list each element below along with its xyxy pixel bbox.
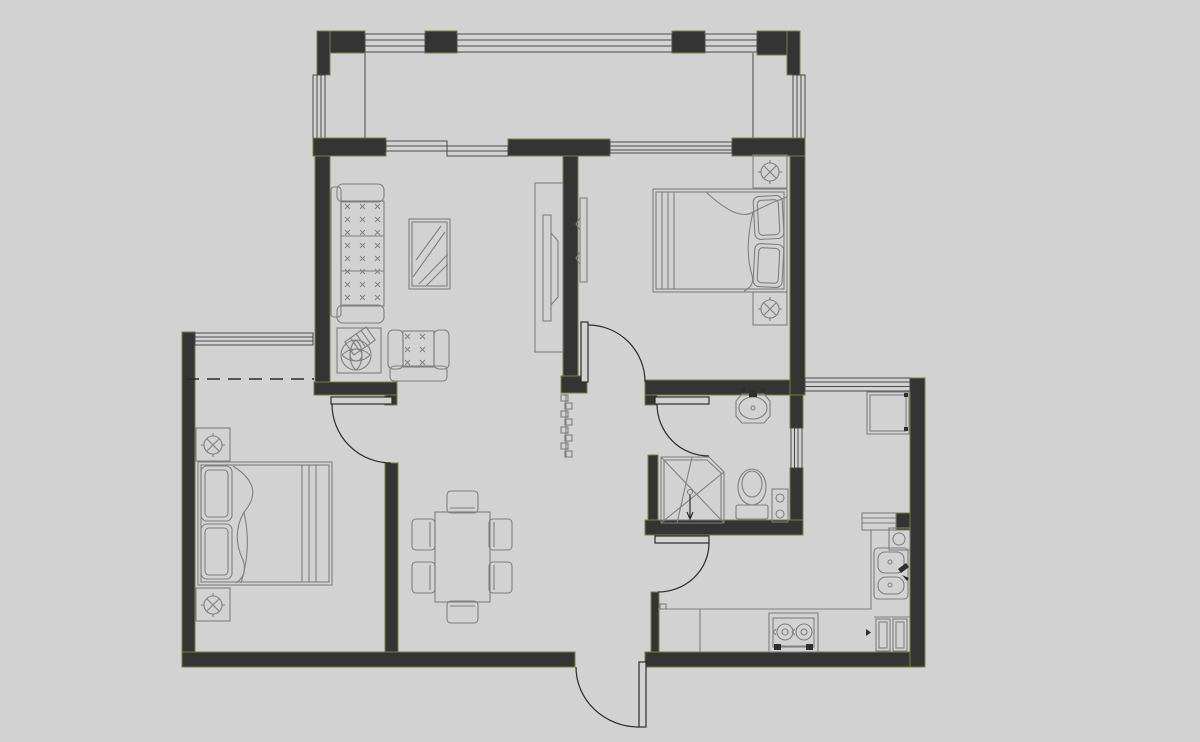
bedroom-left-left-wall <box>182 332 195 653</box>
bedroom-left-furniture <box>196 428 332 621</box>
kitchen-left-stub <box>651 592 659 652</box>
top-wall-left-segment <box>313 138 386 156</box>
bedroom-left-door <box>331 397 392 463</box>
top-wall-middle-segment <box>508 139 610 156</box>
bottom-wall-right <box>645 652 925 667</box>
bathroom-window <box>791 428 802 468</box>
bedroom-right-bottom-wall <box>645 380 805 395</box>
double-bed <box>198 462 332 585</box>
television <box>543 215 551 321</box>
corner-shower <box>661 457 724 523</box>
kitchen-window-band <box>805 378 910 391</box>
living-room-bottom-wall <box>314 382 397 395</box>
balcony <box>313 31 805 138</box>
floor-plan-canvas <box>0 0 1200 742</box>
potted-plant <box>337 327 381 373</box>
armchair <box>388 330 449 381</box>
bathroom-right-wall-lower <box>790 468 803 520</box>
toilet <box>736 469 788 522</box>
top-wall-right-segment <box>732 138 805 156</box>
balcony-corner-top-right-leg <box>787 31 800 75</box>
nightstand-bottom <box>753 292 787 325</box>
blanket-fold-side <box>744 212 753 291</box>
dining-area <box>412 491 512 623</box>
balcony-window-right <box>793 75 805 138</box>
balcony-mullion-right <box>672 31 705 53</box>
gas-stove <box>769 613 818 652</box>
bathroom-fixtures <box>661 387 788 523</box>
double-bed <box>653 189 787 292</box>
refrigerator <box>867 392 909 434</box>
water-heater <box>889 528 910 550</box>
tv-cabinet <box>535 183 563 352</box>
bedroom-right-door <box>581 322 645 382</box>
nightstand-bottom <box>196 588 230 621</box>
glass-coffee-table <box>409 219 450 289</box>
living-room-furniture <box>331 183 563 381</box>
cabinet-appliance <box>866 617 910 651</box>
balcony-mullion-left <box>425 31 457 53</box>
bedroom-right-right-wall <box>790 156 805 395</box>
nightstand-top <box>196 428 230 461</box>
bedroom-right-balcony-window <box>610 142 732 153</box>
walls <box>182 138 925 667</box>
counter-bump <box>660 604 666 609</box>
balcony-corner-top-left-leg <box>317 31 330 75</box>
kitchen-door <box>655 536 709 592</box>
kitchen-sink <box>874 548 909 599</box>
living-bedroom-divider-wall <box>563 156 578 376</box>
three-seat-sofa <box>331 184 384 323</box>
dining-table <box>435 512 490 602</box>
living-room-left-wall <box>315 156 330 382</box>
bedroom-right-furniture <box>576 155 787 325</box>
blanket-fold-2 <box>241 512 247 583</box>
entrance-door <box>576 662 646 727</box>
bottom-wall-left <box>182 652 575 667</box>
bedroom-left-right-wall <box>385 463 398 653</box>
bathroom-right-wall-upper <box>790 395 803 428</box>
right-exterior-wall <box>910 378 925 667</box>
floor-plan-drawing <box>0 0 1200 742</box>
bedroom-left-window <box>195 333 313 345</box>
bead-curtain <box>561 394 572 457</box>
balcony-window-left <box>313 75 325 138</box>
nightstand-top <box>753 155 787 188</box>
blanket-fold <box>233 466 253 583</box>
living-room-balcony-window <box>386 141 508 156</box>
bathroom-door <box>655 397 709 456</box>
